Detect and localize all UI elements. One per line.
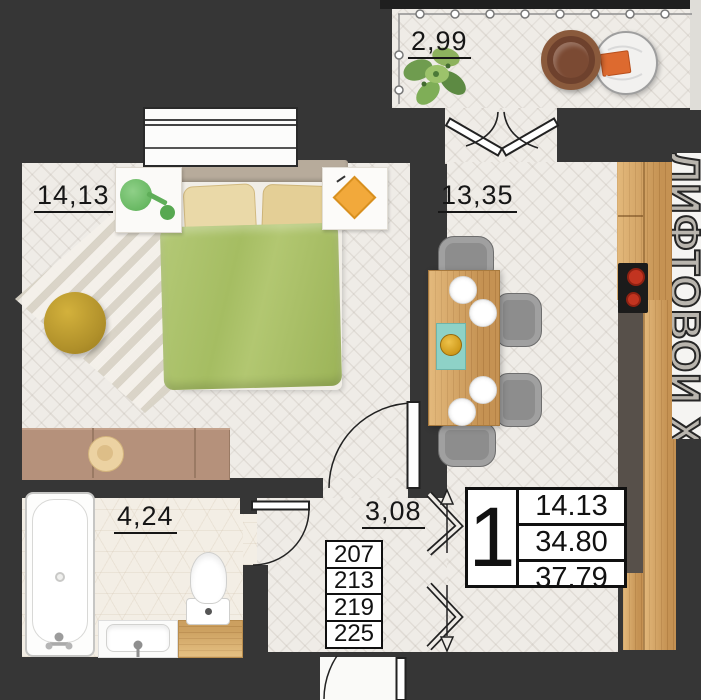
living-area-value: 14.13 — [519, 490, 624, 526]
room-label-hallway: 3,08 — [362, 497, 425, 529]
apartment-number: 213 — [325, 567, 383, 596]
vent-shaft-arrow-up — [429, 490, 459, 553]
apartment-number: 207 — [325, 540, 383, 569]
floor-plan: ЛИФТОВОЙ ХОЛЛ — [0, 0, 701, 700]
room-label-balcony: 2,99 — [408, 27, 471, 59]
bedroom-door — [329, 402, 420, 488]
bathroom-door — [252, 502, 309, 566]
vent-shaft-arrow-down — [429, 585, 459, 651]
apartment-info-table: 1 14.13 34.80 37.79 — [465, 487, 627, 588]
sink-faucet — [134, 641, 143, 658]
room-label-kitchen: 13,35 — [438, 181, 517, 213]
room-count: 1 — [468, 490, 519, 585]
usable-area-value: 34.80 — [519, 526, 624, 562]
apartment-number: 225 — [325, 620, 383, 649]
total-area-value: 37.79 — [519, 562, 624, 595]
apartment-number-stack: 207 213 219 225 — [325, 540, 383, 649]
balcony-double-door — [446, 112, 558, 155]
apartment-number: 219 — [325, 593, 383, 622]
room-label-bathroom: 4,24 — [114, 502, 177, 534]
tub-faucet — [46, 633, 73, 650]
area-values: 14.13 34.80 37.79 — [519, 490, 624, 585]
room-label-bedroom: 14,13 — [34, 181, 113, 213]
marble-streaks — [606, 46, 642, 79]
